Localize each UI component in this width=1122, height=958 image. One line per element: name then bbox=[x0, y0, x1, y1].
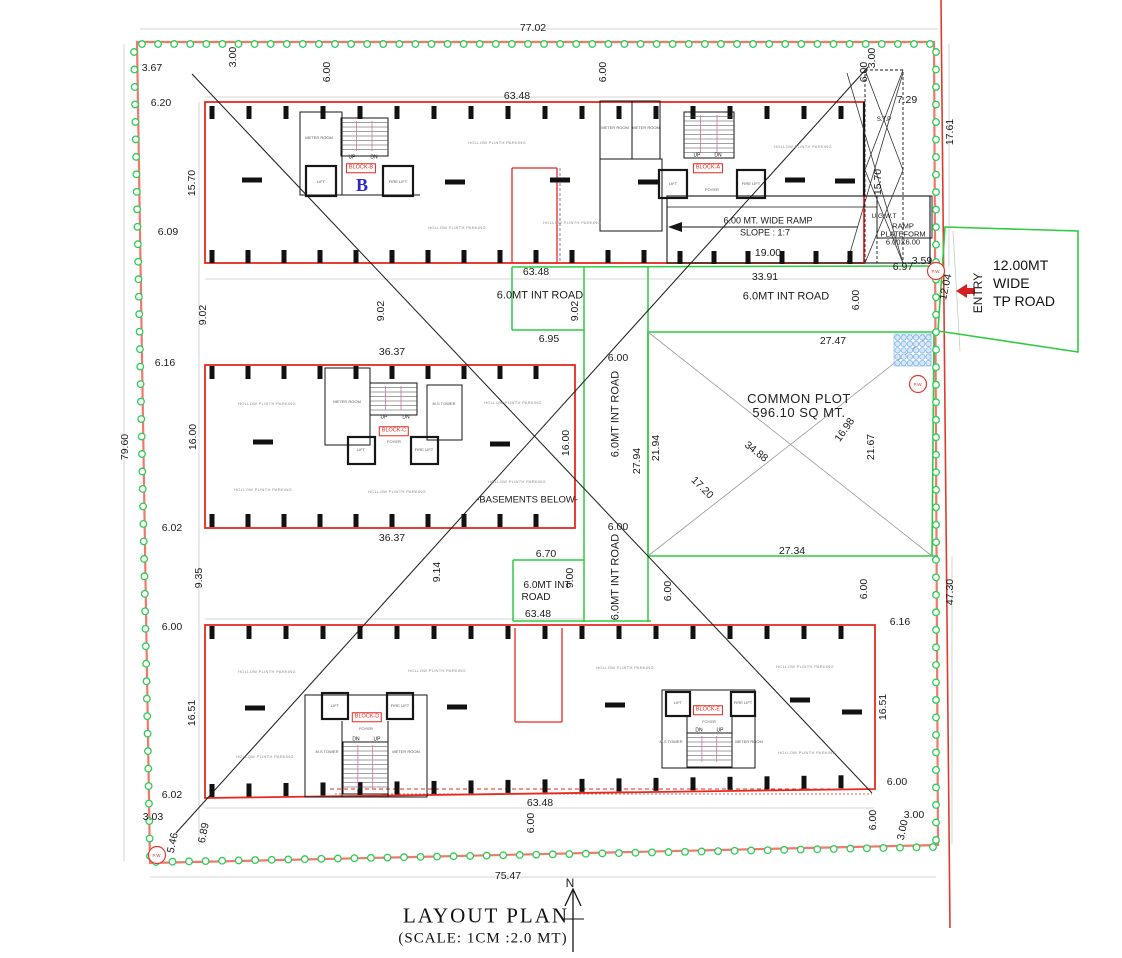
tree-marker bbox=[748, 847, 755, 854]
tree-marker bbox=[880, 845, 887, 852]
water-tank-hatch bbox=[907, 335, 912, 340]
water-tank-hatch bbox=[895, 341, 900, 346]
column-tick bbox=[654, 626, 659, 639]
ramp bbox=[667, 196, 932, 263]
column-tick bbox=[247, 106, 252, 119]
tree-marker bbox=[131, 49, 138, 56]
tree-marker bbox=[143, 660, 150, 667]
aux-dimension-lines bbox=[124, 29, 960, 877]
column-tick bbox=[210, 366, 215, 379]
north-arrow bbox=[562, 889, 584, 952]
water-tank-hatch bbox=[901, 354, 906, 359]
tree-marker bbox=[669, 41, 676, 48]
tree-marker bbox=[133, 154, 140, 161]
tree-marker bbox=[933, 469, 940, 476]
column-tick bbox=[282, 366, 287, 379]
tree-marker bbox=[933, 504, 940, 511]
column-tick bbox=[395, 781, 400, 794]
block-e-core bbox=[662, 690, 755, 768]
tree-marker bbox=[283, 41, 290, 48]
tree-marker bbox=[750, 41, 757, 48]
tree-marker bbox=[878, 41, 885, 48]
tree-marker bbox=[895, 41, 902, 48]
tree-marker bbox=[933, 206, 940, 213]
tree-marker bbox=[171, 41, 178, 48]
tree-marker bbox=[830, 41, 837, 48]
tree-marker bbox=[137, 346, 144, 353]
tree-marker bbox=[268, 856, 275, 863]
lift-shaft bbox=[322, 693, 348, 719]
survey-diagonals bbox=[176, 67, 872, 833]
tree-marker bbox=[316, 41, 323, 48]
column-tick bbox=[246, 514, 251, 527]
column-tick bbox=[691, 777, 696, 790]
tree-marker bbox=[637, 41, 644, 48]
column-tick bbox=[247, 783, 252, 796]
column-dash bbox=[490, 442, 510, 447]
tree-marker bbox=[911, 41, 918, 48]
tree-marker bbox=[139, 468, 146, 475]
column-tick bbox=[354, 366, 359, 379]
internal-roads bbox=[512, 266, 938, 622]
column-tick bbox=[282, 514, 287, 527]
water-tank-hatch bbox=[920, 335, 925, 340]
tree-marker bbox=[933, 697, 940, 704]
tree-marker bbox=[235, 41, 242, 48]
tree-marker bbox=[351, 855, 358, 862]
tree-marker bbox=[599, 850, 606, 857]
column-tick bbox=[462, 250, 467, 263]
staircase bbox=[343, 742, 388, 794]
tree-marker bbox=[718, 41, 725, 48]
column-tick bbox=[469, 780, 474, 793]
column-dash bbox=[253, 440, 273, 445]
tree-marker bbox=[136, 311, 143, 318]
column-tick bbox=[210, 626, 215, 639]
column-tick bbox=[354, 250, 359, 263]
tree-marker bbox=[136, 293, 143, 300]
column-dash bbox=[785, 178, 805, 183]
column-tick bbox=[469, 106, 474, 119]
column-tick bbox=[210, 106, 215, 119]
water-tank-hatch bbox=[907, 360, 912, 365]
plan-canvas: P.W.P.W.P.W. bbox=[0, 0, 1122, 958]
column-tick bbox=[839, 626, 844, 639]
tree-marker bbox=[396, 41, 403, 48]
tree-marker bbox=[132, 101, 139, 108]
tree-marker bbox=[134, 223, 141, 230]
tree-marker bbox=[348, 41, 355, 48]
water-tank-hatch bbox=[907, 348, 912, 353]
tree-marker bbox=[814, 846, 821, 853]
tree-marker bbox=[862, 41, 869, 48]
tree-marker bbox=[698, 848, 705, 855]
block-c-strip bbox=[205, 365, 575, 528]
tree-marker bbox=[933, 679, 940, 686]
column-tick bbox=[506, 106, 511, 119]
column-dash bbox=[245, 706, 265, 711]
tree-marker bbox=[731, 848, 738, 855]
column-tick bbox=[321, 782, 326, 795]
tree-marker bbox=[144, 713, 151, 720]
column-tick bbox=[642, 250, 647, 263]
column-tick bbox=[210, 784, 215, 797]
water-tank-hatch bbox=[901, 341, 906, 346]
column-tick bbox=[247, 626, 252, 639]
column-tick bbox=[654, 778, 659, 791]
column-tick bbox=[802, 106, 807, 119]
tree-marker bbox=[933, 592, 940, 599]
pw-marker-label: P.W. bbox=[932, 269, 941, 274]
tree-marker bbox=[203, 41, 210, 48]
column-tick bbox=[318, 366, 323, 379]
column-tick bbox=[534, 514, 539, 527]
tree-marker bbox=[933, 119, 940, 126]
water-tank-hatch bbox=[901, 348, 906, 353]
tree-marker bbox=[583, 850, 590, 857]
column-tick bbox=[390, 366, 395, 379]
tree-marker bbox=[653, 41, 660, 48]
tree-marker bbox=[933, 101, 940, 108]
column-tick bbox=[746, 251, 751, 264]
column-tick bbox=[543, 779, 548, 792]
column-tick bbox=[282, 250, 287, 263]
column-dash bbox=[638, 180, 658, 185]
column-tick bbox=[534, 366, 539, 379]
column-dash bbox=[447, 705, 467, 710]
water-tank-hatch bbox=[920, 360, 925, 365]
column-tick bbox=[534, 250, 539, 263]
tree-marker bbox=[251, 41, 258, 48]
tree-marker bbox=[142, 608, 149, 615]
tree-marker bbox=[933, 294, 940, 301]
tree-marker bbox=[138, 398, 145, 405]
column-tick bbox=[765, 626, 770, 639]
tree-marker bbox=[715, 848, 722, 855]
water-tank-hatch bbox=[920, 341, 925, 346]
ramp-arrowhead bbox=[668, 222, 682, 232]
column-tick bbox=[432, 781, 437, 794]
tree-marker bbox=[541, 41, 548, 48]
column-tick bbox=[839, 106, 844, 119]
tree-marker bbox=[846, 41, 853, 48]
tree-marker bbox=[734, 41, 741, 48]
column-tick bbox=[506, 626, 511, 639]
tree-marker bbox=[132, 119, 139, 126]
tree-marker bbox=[450, 853, 457, 860]
tree-marker bbox=[933, 49, 940, 56]
tree-marker bbox=[318, 856, 325, 863]
column-tick bbox=[358, 106, 363, 119]
tree-marker bbox=[933, 749, 940, 756]
open-shaft-bottom bbox=[515, 628, 562, 722]
column-tick bbox=[462, 366, 467, 379]
common-plot bbox=[648, 332, 934, 556]
tree-marker bbox=[632, 849, 639, 856]
column-dash bbox=[842, 710, 862, 715]
tree-marker bbox=[933, 346, 940, 353]
tree-marker bbox=[933, 434, 940, 441]
lift-shaft bbox=[411, 437, 438, 464]
tree-marker bbox=[864, 845, 871, 852]
tree-marker bbox=[933, 557, 940, 564]
tree-marker bbox=[252, 857, 259, 864]
tree-marker bbox=[141, 556, 148, 563]
column-tick bbox=[432, 106, 437, 119]
column-tick bbox=[780, 251, 785, 264]
tree-marker bbox=[533, 851, 540, 858]
tree-marker bbox=[933, 662, 940, 669]
column-tick bbox=[390, 250, 395, 263]
tree-marker bbox=[144, 695, 151, 702]
column-tick bbox=[395, 106, 400, 119]
column-tick bbox=[617, 626, 622, 639]
tree-marker bbox=[412, 41, 419, 48]
water-tank-hatch bbox=[913, 354, 918, 359]
column-tick bbox=[426, 514, 431, 527]
tree-marker bbox=[933, 329, 940, 336]
block-c-core bbox=[325, 368, 462, 464]
tree-marker bbox=[138, 433, 145, 440]
tree-marker bbox=[444, 41, 451, 48]
tree-marker bbox=[933, 644, 940, 651]
water-tank-hatch bbox=[913, 335, 918, 340]
tree-marker bbox=[509, 41, 516, 48]
column-dash bbox=[790, 698, 810, 703]
column-tick bbox=[728, 626, 733, 639]
tree-marker bbox=[930, 844, 937, 851]
column-tick bbox=[395, 626, 400, 639]
tree-marker bbox=[143, 643, 150, 650]
column-tick bbox=[543, 106, 548, 119]
column-tick bbox=[691, 626, 696, 639]
tree-marker bbox=[380, 41, 387, 48]
tree-marker bbox=[139, 486, 146, 493]
tree-marker bbox=[933, 837, 940, 844]
tree-marker bbox=[140, 538, 147, 545]
column-dash bbox=[835, 179, 855, 184]
column-dash bbox=[242, 178, 262, 183]
tree-marker bbox=[219, 41, 226, 48]
tree-marker bbox=[135, 276, 142, 283]
tree-marker bbox=[467, 853, 474, 860]
building-strips bbox=[205, 102, 875, 798]
column-dash bbox=[605, 703, 625, 708]
pw-marker-label: P.W. bbox=[153, 853, 162, 858]
tree-marker bbox=[401, 854, 408, 861]
tree-marker bbox=[797, 846, 804, 853]
tree-marker bbox=[136, 328, 143, 335]
water-tank-hatch bbox=[926, 360, 931, 365]
tree-marker bbox=[137, 363, 144, 370]
column-tick bbox=[246, 366, 251, 379]
tree-marker bbox=[933, 627, 940, 634]
tree-marker bbox=[139, 41, 146, 48]
column-tick bbox=[354, 514, 359, 527]
column-tick bbox=[390, 514, 395, 527]
tree-marker bbox=[202, 858, 209, 865]
water-tank-hatch bbox=[913, 360, 918, 365]
site-boundary bbox=[137, 42, 938, 863]
tree-marker bbox=[766, 41, 773, 48]
column-tick bbox=[580, 626, 585, 639]
water-tank-hatch bbox=[926, 354, 931, 359]
tree-marker bbox=[140, 521, 147, 528]
column-tick bbox=[606, 250, 611, 263]
tree-marker bbox=[933, 539, 940, 546]
tree-marker bbox=[933, 311, 940, 318]
column-tick bbox=[246, 250, 251, 263]
block-b-core bbox=[300, 112, 420, 196]
tree-marker bbox=[933, 784, 940, 791]
tree-marker bbox=[133, 171, 140, 178]
column-tick bbox=[543, 626, 548, 639]
column-tick bbox=[839, 775, 844, 788]
water-tank-hatch bbox=[895, 348, 900, 353]
tree-marker bbox=[933, 451, 940, 458]
tree-marker bbox=[782, 41, 789, 48]
tree-marker bbox=[500, 852, 507, 859]
block-cores bbox=[300, 101, 864, 797]
tree-marker bbox=[933, 767, 940, 774]
column-tick bbox=[802, 626, 807, 639]
water-tank-hatch bbox=[920, 348, 925, 353]
column-tick bbox=[358, 626, 363, 639]
tree-marker bbox=[933, 399, 940, 406]
staircase bbox=[687, 733, 732, 767]
tree-marker bbox=[169, 858, 176, 865]
column-tick bbox=[426, 250, 431, 263]
tree-marker bbox=[525, 41, 532, 48]
column-tick bbox=[580, 106, 585, 119]
tree-marker bbox=[131, 84, 138, 91]
stp-tank bbox=[847, 70, 903, 263]
tree-marker bbox=[146, 835, 153, 842]
tree-marker bbox=[927, 41, 934, 48]
column-tick bbox=[210, 250, 215, 263]
tree-marker bbox=[145, 748, 152, 755]
tree-marker bbox=[702, 41, 709, 48]
tree-marker bbox=[933, 574, 940, 581]
tree-marker bbox=[134, 206, 141, 213]
water-tank-hatch bbox=[926, 341, 931, 346]
tree-marker bbox=[267, 41, 274, 48]
water-tank-hatch bbox=[901, 360, 906, 365]
tree-marker bbox=[933, 84, 940, 91]
tree-marker bbox=[764, 847, 771, 854]
lift-shaft bbox=[383, 166, 413, 196]
column-tick bbox=[318, 514, 323, 527]
tree-marker bbox=[933, 189, 940, 196]
tree-marker bbox=[140, 503, 147, 510]
column-tick bbox=[284, 106, 289, 119]
tree-marker bbox=[933, 171, 940, 178]
tree-marker bbox=[566, 851, 573, 858]
water-tank-hatch bbox=[907, 354, 912, 359]
tree-marker bbox=[143, 678, 150, 685]
tree-marker bbox=[483, 852, 490, 859]
tree-marker bbox=[135, 258, 142, 265]
tree-marker bbox=[682, 848, 689, 855]
tree-marker bbox=[933, 224, 940, 231]
lift-shaft bbox=[387, 693, 413, 719]
tree-marker bbox=[549, 851, 556, 858]
column-tick bbox=[580, 779, 585, 792]
tree-marker bbox=[831, 846, 838, 853]
water-tank-hatch bbox=[907, 341, 912, 346]
tree-marker bbox=[781, 847, 788, 854]
column-tick bbox=[469, 626, 474, 639]
tree-marker bbox=[933, 802, 940, 809]
tree-marker bbox=[132, 136, 139, 143]
tree-marker bbox=[685, 41, 692, 48]
tree-marker bbox=[141, 573, 148, 580]
tree-marker bbox=[933, 416, 940, 423]
tree-marker bbox=[137, 381, 144, 388]
tree-marker bbox=[364, 41, 371, 48]
column-tick bbox=[426, 366, 431, 379]
tree-marker bbox=[141, 591, 148, 598]
column-tick bbox=[318, 250, 323, 263]
tree-marker bbox=[155, 41, 162, 48]
tree-marker bbox=[235, 857, 242, 864]
tree-marker bbox=[368, 855, 375, 862]
column-dash bbox=[445, 180, 465, 185]
water-tank-hatch bbox=[895, 354, 900, 359]
column-tick bbox=[284, 626, 289, 639]
tree-marker bbox=[145, 765, 152, 772]
tree-marker bbox=[133, 189, 140, 196]
tree-marker bbox=[933, 609, 940, 616]
tree-marker bbox=[434, 853, 441, 860]
column-tick bbox=[728, 777, 733, 790]
tree-marker bbox=[573, 41, 580, 48]
tree-marker bbox=[492, 41, 499, 48]
tree-marker bbox=[384, 854, 391, 861]
column-tick bbox=[802, 776, 807, 789]
column-dash bbox=[550, 178, 570, 183]
lift-shaft bbox=[659, 170, 687, 198]
tree-marker bbox=[933, 714, 940, 721]
tree-marker bbox=[933, 486, 940, 493]
column-tick bbox=[765, 776, 770, 789]
tree-marker bbox=[335, 855, 342, 862]
tree-marker bbox=[139, 451, 146, 458]
tree-marker bbox=[142, 625, 149, 632]
column-tick bbox=[506, 780, 511, 793]
tree-marker bbox=[933, 732, 940, 739]
water-tank-hatch bbox=[895, 360, 900, 365]
tree-marker bbox=[897, 844, 904, 851]
tree-marker bbox=[814, 41, 821, 48]
pw-marker-label: P.W. bbox=[914, 382, 923, 387]
column-tick bbox=[210, 514, 215, 527]
tree-marker bbox=[187, 41, 194, 48]
generated-geometry: P.W.P.W.P.W. bbox=[131, 41, 945, 866]
tree-marker bbox=[847, 845, 854, 852]
tree-marker bbox=[146, 818, 153, 825]
entry-arrow-icon bbox=[956, 284, 975, 298]
tree-marker bbox=[186, 858, 193, 865]
tree-marker bbox=[285, 856, 292, 863]
tree-marker bbox=[798, 41, 805, 48]
column-tick bbox=[617, 106, 622, 119]
column-tick bbox=[654, 106, 659, 119]
tree-marker bbox=[933, 136, 940, 143]
column-tick bbox=[712, 251, 717, 264]
column-tick bbox=[678, 251, 683, 264]
column-tick bbox=[570, 250, 575, 263]
